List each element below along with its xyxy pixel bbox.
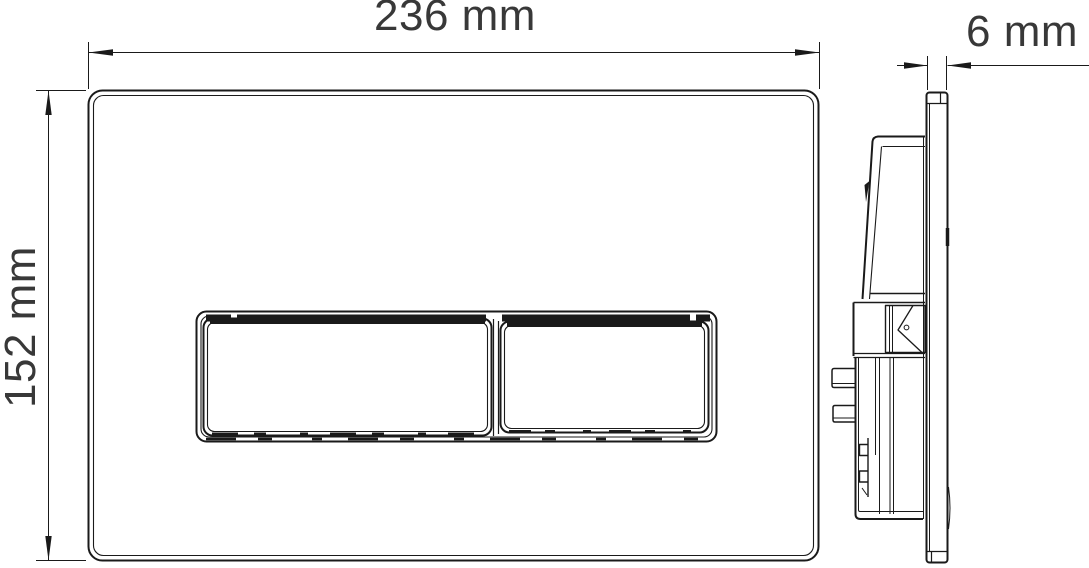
- left-flush-button: [204, 319, 492, 436]
- width-arrow-left: [89, 49, 114, 55]
- latch-inner-edges: [890, 306, 893, 353]
- clip-tip: [862, 488, 867, 495]
- pin-outline: [833, 406, 855, 423]
- housing-bottom-inner: [859, 510, 924, 512]
- height-arrow-top: [45, 91, 51, 116]
- right-button-top-shade: [507, 323, 702, 328]
- recess-outer-outline: [197, 312, 717, 442]
- housing-mid-lines: [854, 294, 926, 303]
- dimension-width: [89, 42, 820, 89]
- depth-arrow-right: [948, 62, 972, 68]
- housing-top-inner: [870, 147, 926, 300]
- latch-wedge: [898, 306, 922, 353]
- width-arrow-right: [795, 49, 820, 55]
- side-plate-bulge: [949, 487, 951, 529]
- clip-tooth-bottom: [860, 471, 869, 482]
- width-extension-lines: [89, 42, 820, 89]
- side-plate-bottom-notch: [927, 552, 948, 563]
- side-mount-housing: [832, 137, 925, 520]
- left-button-inner: [208, 323, 488, 432]
- mounting-pin-bottom: [833, 406, 855, 423]
- housing-mid-bottom: [854, 354, 926, 358]
- side-view: [832, 93, 950, 563]
- width-dimension-label: 236 mm: [330, 0, 580, 39]
- front-view: [89, 91, 819, 561]
- clip-tooth-top: [860, 445, 869, 456]
- latch-detail: [886, 306, 926, 353]
- flush-plate-drawing: [0, 0, 1089, 568]
- dimension-depth: [897, 56, 1089, 90]
- height-dimension-label: 152 mm: [0, 217, 44, 437]
- right-button-outer: [501, 322, 709, 433]
- button-divider: [494, 319, 499, 436]
- side-plate-profile: [927, 93, 951, 563]
- latch-pivot: [904, 325, 909, 330]
- mounting-pin-top: [832, 369, 855, 388]
- housing-bottom: [856, 514, 924, 519]
- left-button-top-shade: [210, 320, 485, 325]
- button-recess: [197, 312, 717, 442]
- recess-inner-outline: [201, 316, 712, 437]
- right-flush-button: [501, 322, 709, 433]
- retainer-clip: [860, 438, 869, 497]
- depth-extension-lines: [928, 56, 947, 90]
- side-plate-top-notch: [927, 93, 948, 104]
- height-arrow-bottom: [45, 536, 51, 561]
- technical-drawing-canvas: 236 mm 152 mm 6 mm: [0, 0, 1089, 568]
- left-button-outer: [204, 319, 492, 436]
- plate-outer-outline: [89, 91, 819, 561]
- depth-arrow-left: [904, 62, 928, 68]
- right-button-inner: [505, 326, 705, 429]
- pin-outline: [832, 369, 855, 388]
- depth-dimension-label: 6 mm: [956, 9, 1088, 55]
